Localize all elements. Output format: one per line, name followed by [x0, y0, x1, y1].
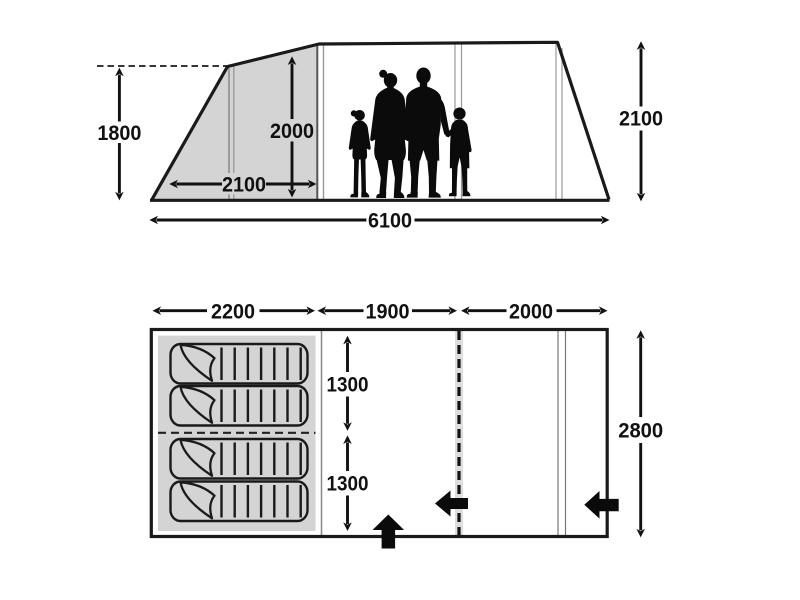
- svg-text:1900: 1900: [366, 300, 410, 323]
- svg-text:1300: 1300: [327, 472, 369, 495]
- svg-text:2200: 2200: [211, 300, 255, 323]
- svg-text:2800: 2800: [618, 420, 663, 443]
- svg-text:1800: 1800: [97, 122, 141, 145]
- svg-text:2000: 2000: [270, 120, 314, 143]
- svg-text:1300: 1300: [327, 373, 369, 396]
- svg-text:6100: 6100: [368, 210, 412, 233]
- svg-text:2100: 2100: [222, 174, 266, 197]
- svg-text:2100: 2100: [619, 108, 663, 131]
- svg-text:2000: 2000: [509, 300, 553, 323]
